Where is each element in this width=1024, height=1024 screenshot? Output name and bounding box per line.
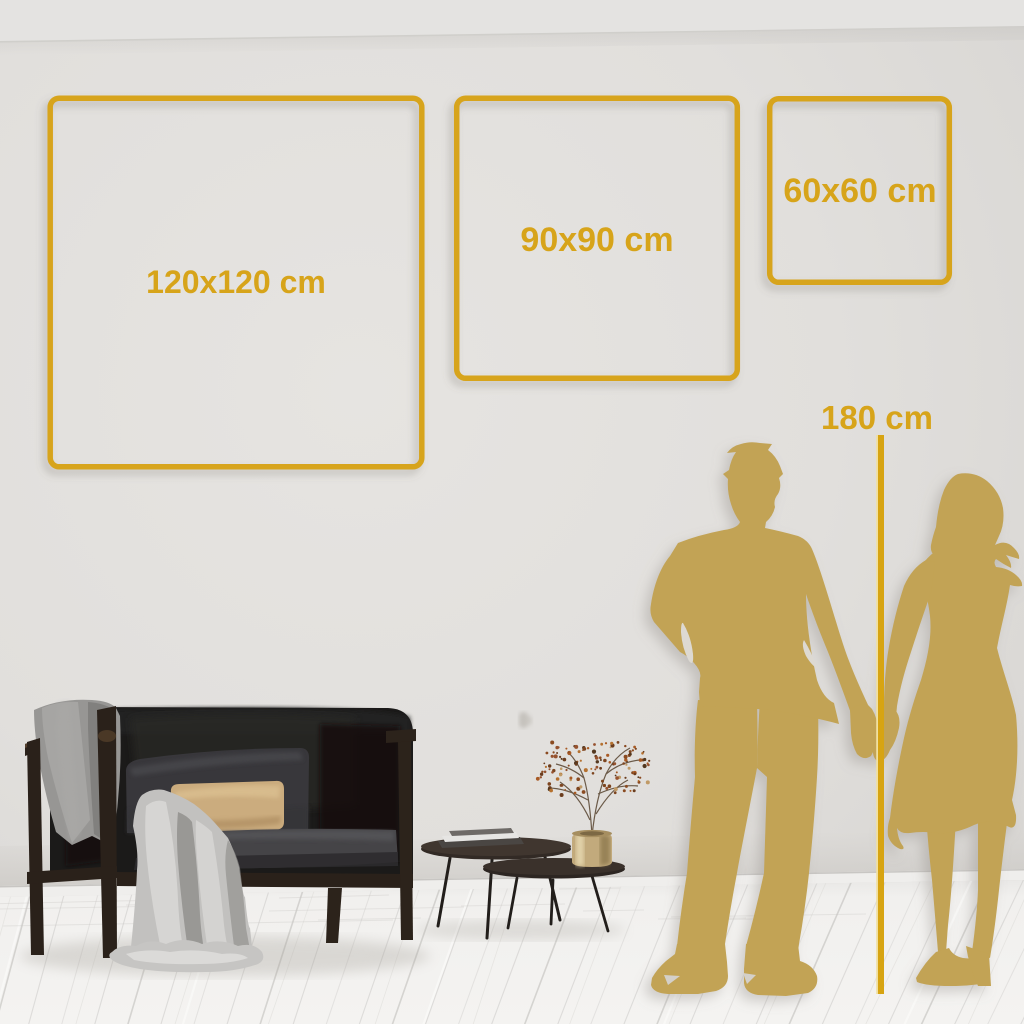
svg-text:60x60 cm: 60x60 cm <box>783 172 936 210</box>
svg-text:120x120 cm: 120x120 cm <box>146 264 326 300</box>
svg-text:180 cm: 180 cm <box>821 399 933 436</box>
svg-text:90x90 cm: 90x90 cm <box>520 221 673 259</box>
